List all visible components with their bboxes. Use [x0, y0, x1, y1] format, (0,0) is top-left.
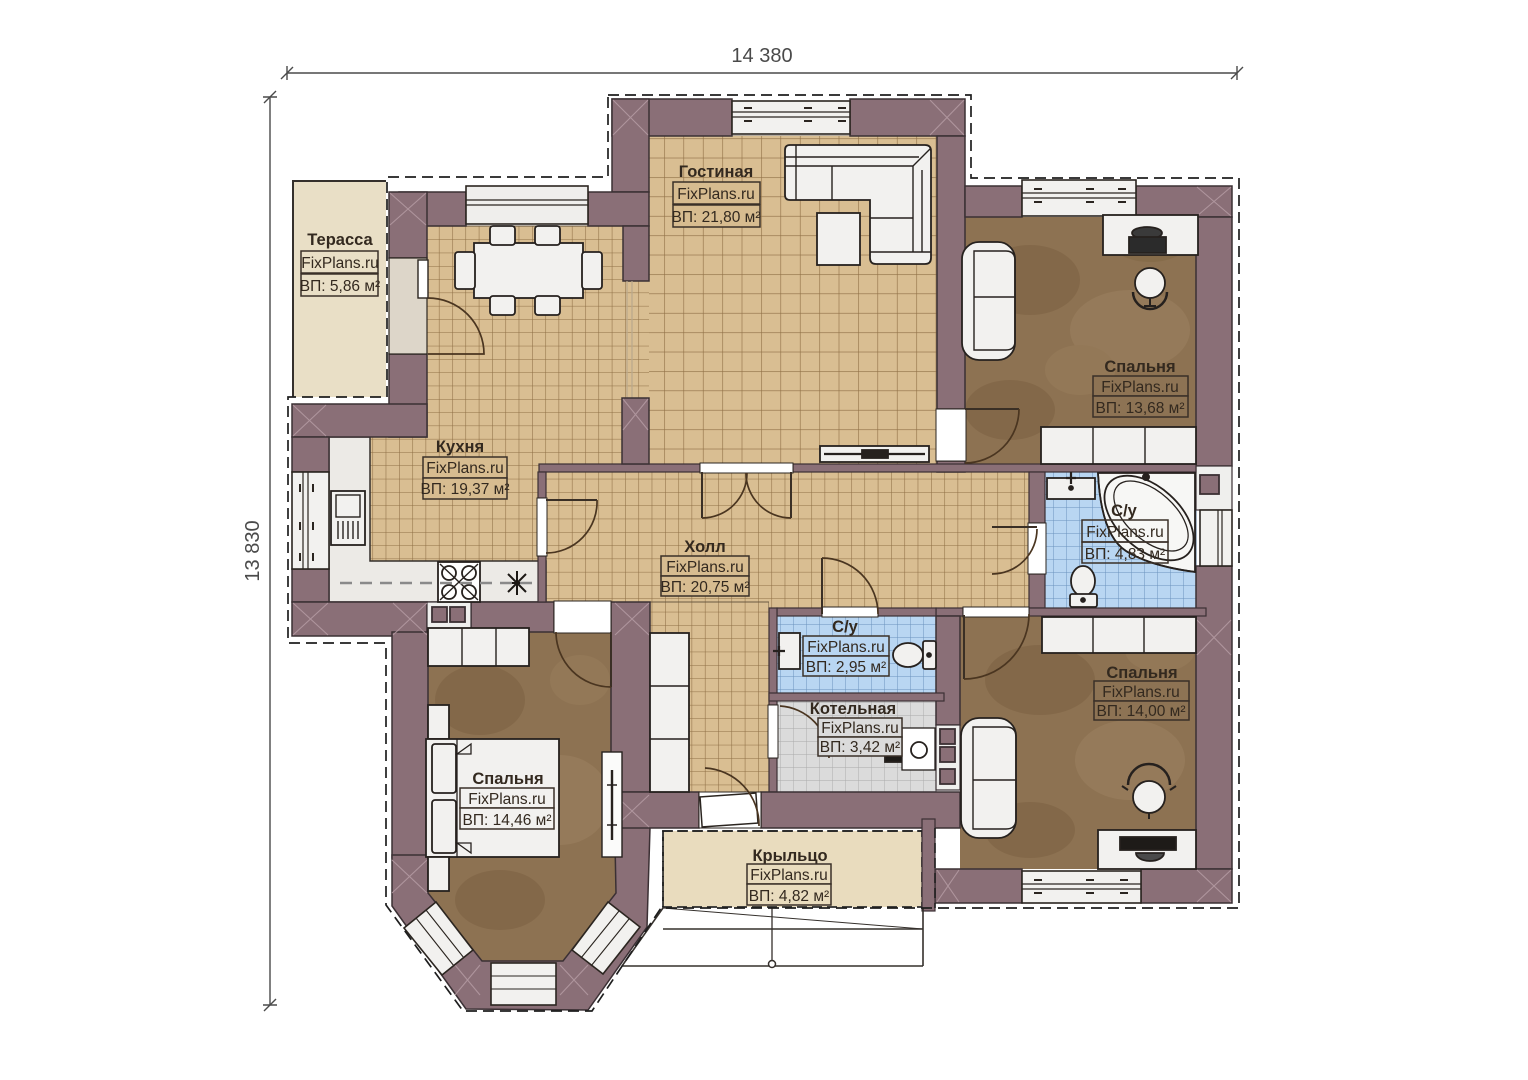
svg-text:Кухня: Кухня [436, 438, 484, 456]
svg-text:Спальня: Спальня [1106, 664, 1177, 682]
svg-text:ВП: 14,00 м²: ВП: 14,00 м² [1096, 703, 1185, 720]
svg-text:FixPlans.ru: FixPlans.ru [677, 186, 755, 203]
svg-text:FixPlans.ru: FixPlans.ru [468, 791, 546, 808]
svg-text:ВП: 19,37 м²: ВП: 19,37 м² [420, 481, 509, 498]
svg-text:14 380: 14 380 [731, 45, 792, 67]
svg-text:С/у: С/у [832, 618, 859, 636]
svg-text:С/у: С/у [1111, 502, 1138, 520]
svg-text:Холл: Холл [684, 538, 725, 556]
svg-text:ВП: 14,46 м²: ВП: 14,46 м² [462, 812, 551, 829]
svg-text:ВП: 4,83 м²: ВП: 4,83 м² [1085, 546, 1165, 563]
svg-text:Спальня: Спальня [472, 770, 543, 788]
svg-text:ВП: 3,42 м²: ВП: 3,42 м² [820, 739, 900, 756]
svg-text:Гостиная: Гостиная [679, 163, 754, 181]
svg-text:FixPlans.ru: FixPlans.ru [301, 255, 379, 272]
svg-text:FixPlans.ru: FixPlans.ru [1086, 524, 1164, 541]
svg-text:FixPlans.ru: FixPlans.ru [426, 460, 504, 477]
svg-text:Спальня: Спальня [1104, 358, 1175, 376]
svg-text:13 830: 13 830 [242, 520, 264, 581]
svg-text:FixPlans.ru: FixPlans.ru [807, 639, 885, 656]
svg-text:FixPlans.ru: FixPlans.ru [821, 720, 899, 737]
svg-text:ВП: 5,86 м²: ВП: 5,86 м² [300, 278, 380, 295]
svg-text:FixPlans.ru: FixPlans.ru [1102, 684, 1180, 701]
svg-text:FixPlans.ru: FixPlans.ru [750, 867, 828, 884]
svg-text:ВП: 4,82 м²: ВП: 4,82 м² [749, 888, 829, 905]
svg-text:ВП: 21,80 м²: ВП: 21,80 м² [671, 209, 760, 226]
svg-text:Крыльцо: Крыльцо [752, 847, 827, 865]
svg-text:FixPlans.ru: FixPlans.ru [1101, 379, 1179, 396]
svg-text:ВП: 20,75 м²: ВП: 20,75 м² [660, 579, 749, 596]
svg-text:FixPlans.ru: FixPlans.ru [666, 559, 744, 576]
svg-text:ВП: 2,95 м²: ВП: 2,95 м² [806, 659, 886, 676]
svg-text:Котельная: Котельная [810, 700, 896, 718]
svg-text:ВП: 13,68 м²: ВП: 13,68 м² [1095, 400, 1184, 417]
svg-text:Терасса: Терасса [307, 231, 373, 249]
